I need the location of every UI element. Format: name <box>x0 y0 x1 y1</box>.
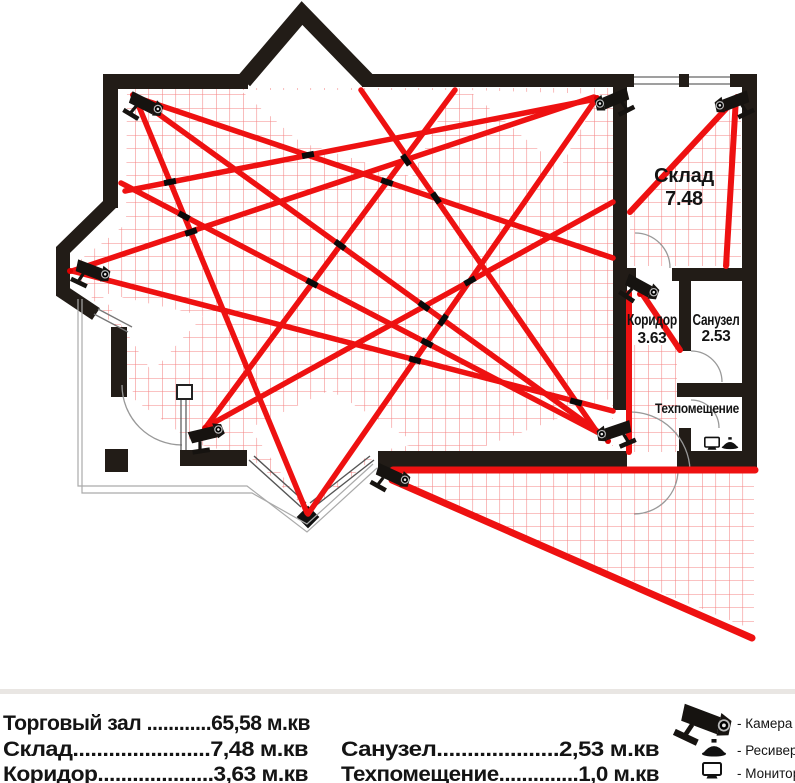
wall-left-block <box>105 449 128 472</box>
footer-divider <box>0 689 795 694</box>
window-sklad-2 <box>689 77 730 84</box>
legend-label-camera: - Камера <box>737 716 793 731</box>
monitor-icon <box>703 763 721 779</box>
wall-top-mid <box>362 74 634 87</box>
monitor-icon <box>705 437 719 449</box>
room-label-sklad: Склад <box>654 165 714 187</box>
coverage-grid-street <box>396 473 754 630</box>
sanuzel-door-arc <box>691 351 722 382</box>
area-row: Техпомещение..............1,0 м.кв <box>341 763 660 783</box>
wall-bay-peak <box>244 13 368 81</box>
wall-bottom-main <box>378 451 627 468</box>
window-sklad-1 <box>634 77 679 84</box>
area-row: Коридор....................3,63 м.кв <box>3 763 309 783</box>
legend-label-monitor: - Монитор <box>737 766 795 781</box>
room-label-koridor: Коридор <box>627 312 677 329</box>
wall-sklad-bottom <box>672 268 742 281</box>
wall-left-upper <box>103 74 118 208</box>
entrance-door-frame <box>177 385 192 399</box>
wall-sanuzel-tehpom <box>677 383 742 397</box>
wall-interior-vertical <box>613 86 627 410</box>
wall-top-left <box>112 74 248 89</box>
floor-plan-canvas: Склад 7.48 Коридор 3.63 Санузел 2.53 Тех… <box>0 0 795 783</box>
room-label-tehpom: Техпомещение <box>655 400 739 416</box>
receiver-icon <box>702 739 726 757</box>
area-row: Склад.......................7,48 м.кв <box>3 738 309 761</box>
wall-koridor-sanuzel <box>679 281 691 351</box>
room-label-sanuzel: Санузел <box>693 312 740 329</box>
coverage-grid-koridor <box>629 345 677 452</box>
legend-label-receiver: - Ресивер <box>737 743 795 758</box>
room-area-sanuzel: 2.53 <box>702 328 732 345</box>
floor-plan-page: Склад 7.48 Коридор 3.63 Санузел 2.53 Тех… <box>0 0 795 783</box>
wall-left-mid <box>111 327 127 397</box>
area-row: Торговый зал ............65,58 м.кв <box>3 712 311 735</box>
wall-bottom-left <box>180 450 247 466</box>
area-list: Торговый зал ............65,58 м.кв Скла… <box>3 712 660 783</box>
wall-right <box>742 74 757 468</box>
room-area-sklad: 7.48 <box>665 188 703 210</box>
camera-icon <box>673 703 733 749</box>
legend: - Камера - Ресивер - Монитор <box>673 703 795 781</box>
receiver-icon <box>722 437 739 449</box>
room-area-koridor: 3.63 <box>638 330 668 347</box>
area-row: Санузел....................2,53 м.кв <box>341 738 660 761</box>
wall-window-pier <box>679 74 689 87</box>
